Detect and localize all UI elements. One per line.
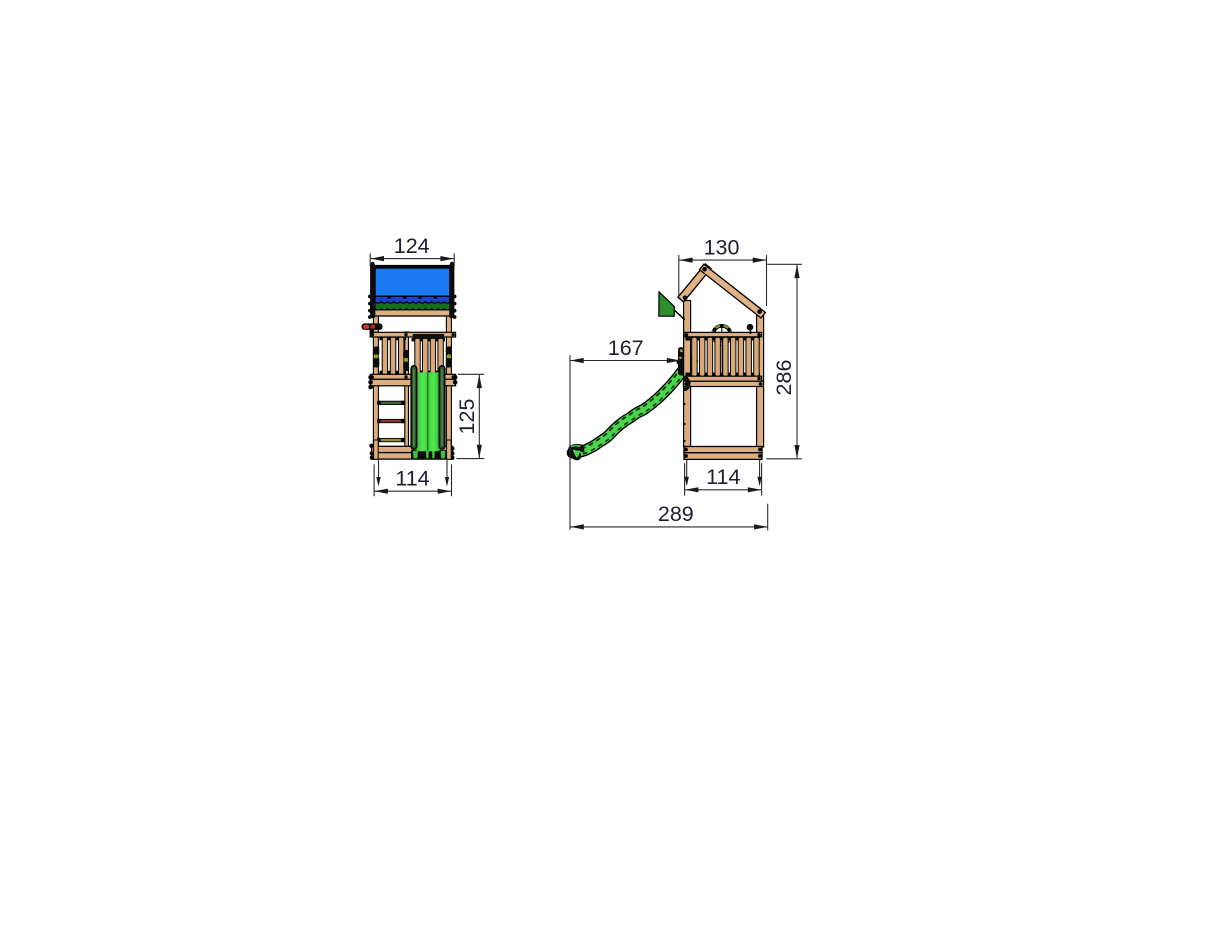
svg-text:289: 289 <box>658 502 694 526</box>
svg-text:286: 286 <box>772 360 796 396</box>
svg-text:167: 167 <box>608 336 644 360</box>
svg-text:114: 114 <box>395 467 429 491</box>
svg-text:125: 125 <box>455 399 479 435</box>
svg-text:114: 114 <box>706 465 740 489</box>
svg-text:124: 124 <box>394 234 430 258</box>
svg-text:130: 130 <box>704 236 740 260</box>
